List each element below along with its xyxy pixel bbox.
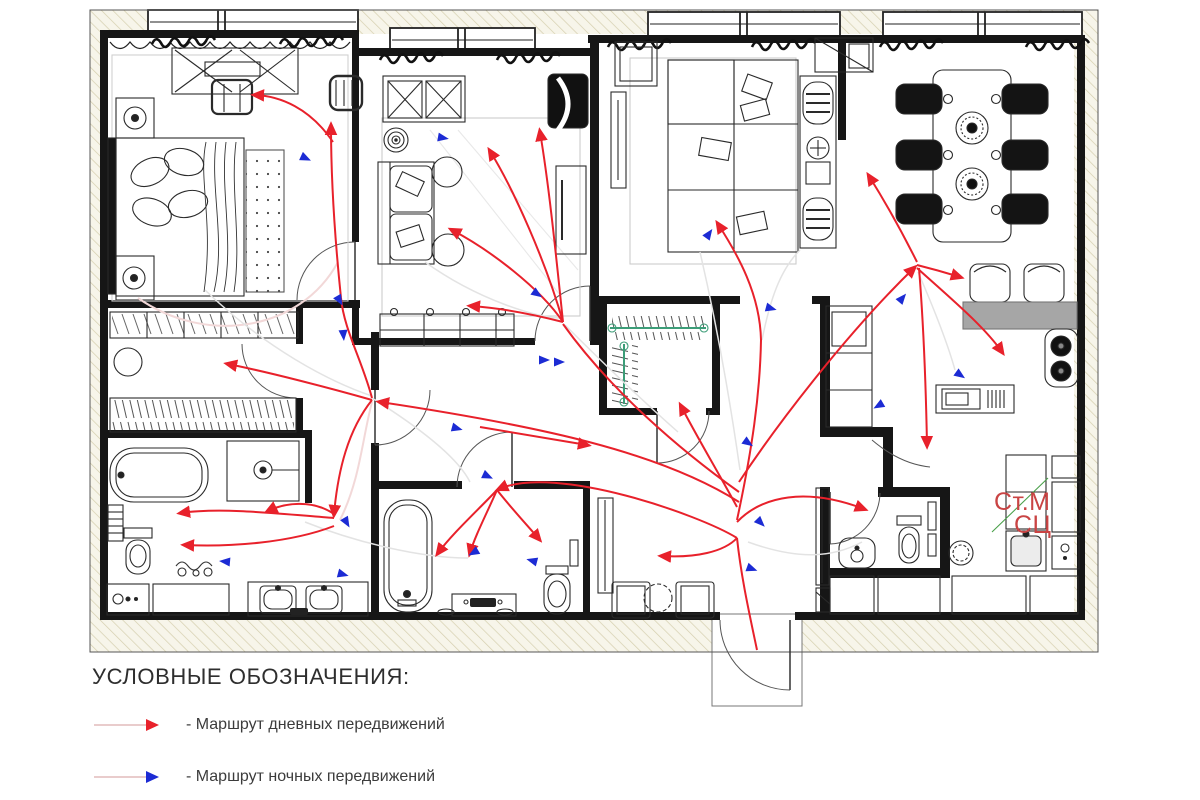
dining-chair [1002, 84, 1048, 114]
bed-throw [246, 150, 284, 292]
legend-title: УСЛОВНЫЕ ОБОЗНАЧЕНИЯ: [92, 664, 445, 690]
legend-item-day-route: - Маршрут дневных передвижений [92, 714, 445, 736]
dining-chair [896, 194, 942, 224]
bed-headboard [108, 138, 116, 294]
floor-plan-page: Ст.М СЦ УСЛОВНЫЕ ОБОЗНАЧЕНИЯ: - Маршрут … [0, 0, 1200, 800]
dining-chair [896, 84, 942, 114]
legend-item-night-route: - Маршрут ночных передвижений [92, 766, 445, 788]
dining-chair [1002, 140, 1048, 170]
entry-recess [712, 614, 802, 706]
dining-chair [896, 140, 942, 170]
laundry-label: СЦ [1014, 513, 1052, 538]
legend: УСЛОВНЫЕ ОБОЗНАЧЕНИЯ: - Маршрут дневных … [92, 664, 445, 788]
legend-label-day: - Маршрут дневных передвижений [186, 716, 445, 734]
day-route-arrow-icon [92, 717, 162, 733]
night-route-arrow-icon [92, 769, 162, 785]
dining-chair [1002, 194, 1048, 224]
legend-label-night: - Маршрут ночных передвижений [186, 768, 435, 786]
